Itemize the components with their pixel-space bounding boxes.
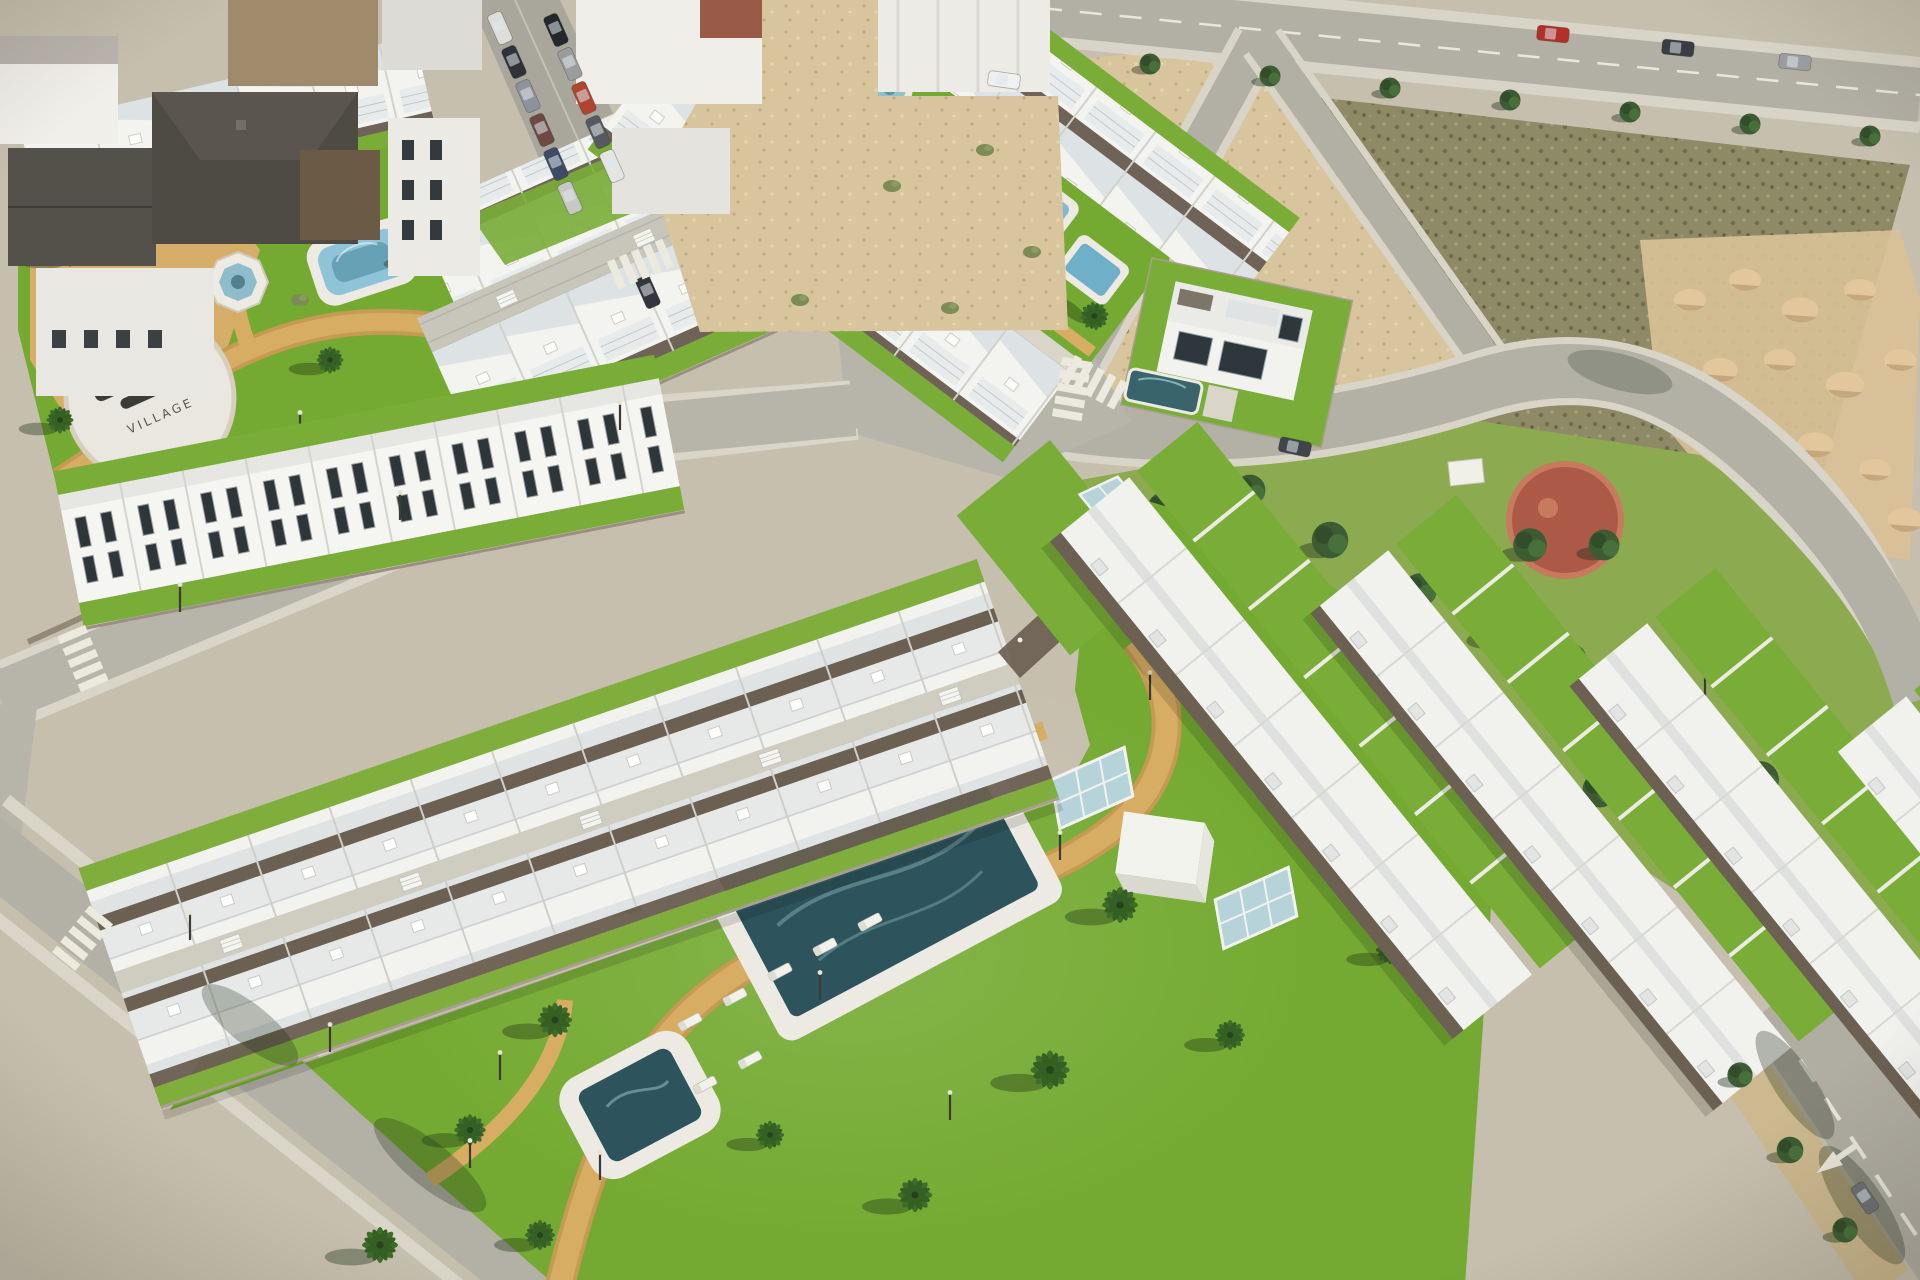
vignette [0,0,1920,1280]
render-canvas: VILLAGE [0,0,1920,1280]
aerial-render-image: VILLAGE [0,0,1920,1280]
